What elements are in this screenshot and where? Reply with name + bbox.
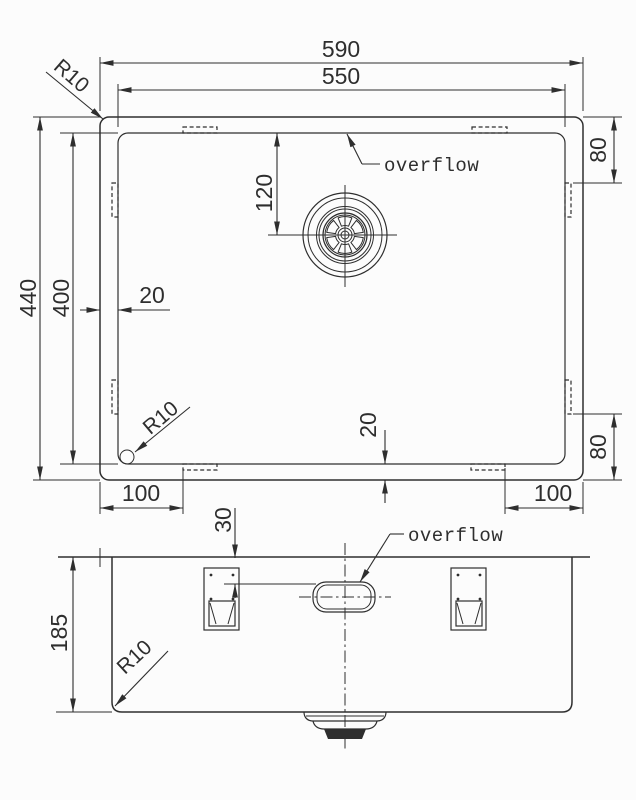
dim-100-right-value: 100 — [534, 480, 572, 506]
dim-120-value: 120 — [251, 174, 277, 212]
dim-clip-offset-bottom-left: 100 — [100, 480, 183, 508]
dim-440-value: 440 — [15, 279, 41, 317]
dim-rim-bottom: 20 — [355, 412, 385, 503]
dim-depth: 185 — [46, 557, 73, 712]
sink-technical-drawing: 590 550 440 400 120 20 20 — [0, 0, 636, 800]
radius-callout-front: R10 — [113, 636, 168, 706]
bowl-outline — [112, 557, 572, 712]
dim-550-value: 550 — [322, 63, 360, 89]
drain-base — [324, 729, 366, 739]
dim-20-bottom-value: 20 — [355, 412, 381, 438]
dim-30-value: 30 — [210, 507, 236, 533]
dim-185-value: 185 — [46, 614, 72, 652]
dim-400-value: 400 — [48, 279, 74, 317]
dim-clip-edge-bottom-right: 80 — [585, 414, 614, 480]
mounting-clips-top — [112, 127, 622, 514]
dim-rim-left: 20 — [80, 282, 170, 310]
dim-80-top-value: 80 — [585, 137, 611, 163]
dim-80-bottom-value: 80 — [585, 434, 611, 460]
dim-100-left-value: 100 — [122, 480, 160, 506]
radius-inner-label: R10 — [139, 397, 183, 439]
inner-corner-radius-arc — [120, 450, 134, 464]
radius-outer-label: R10 — [49, 55, 93, 98]
radius-callout-inner: R10 — [135, 397, 190, 452]
drain-top — [268, 185, 397, 287]
drawing-canvas: 590 550 440 400 120 20 20 — [0, 0, 636, 800]
dim-clip-edge-top-right: 80 — [585, 117, 614, 183]
overflow-label-front: overflow — [408, 525, 503, 547]
overflow-callout-top: overflow — [347, 134, 479, 177]
dim-overflow-offset: 30 — [210, 507, 316, 598]
top-view: 590 550 440 400 120 20 20 — [15, 36, 622, 514]
dim-590-value: 590 — [322, 36, 360, 62]
mounting-clip-front-right — [451, 568, 486, 630]
radius-front-label: R10 — [113, 636, 157, 679]
sink-outline-top — [33, 117, 622, 514]
radius-callout-outer: R10 — [46, 55, 103, 119]
dim-clip-offset-bottom-right: 100 — [505, 480, 583, 508]
overflow-label-top: overflow — [384, 155, 479, 177]
dim-20-left-value: 20 — [139, 282, 165, 308]
front-view: 30 185 R10 overflow — [46, 507, 590, 752]
dim-drain-offset: 120 — [251, 133, 277, 235]
dim-outer-height: 440 — [15, 117, 41, 480]
overflow-callout-front: overflow — [360, 525, 503, 582]
mounting-clip-front-left — [204, 568, 239, 630]
dim-inner-height: 400 — [48, 133, 74, 464]
